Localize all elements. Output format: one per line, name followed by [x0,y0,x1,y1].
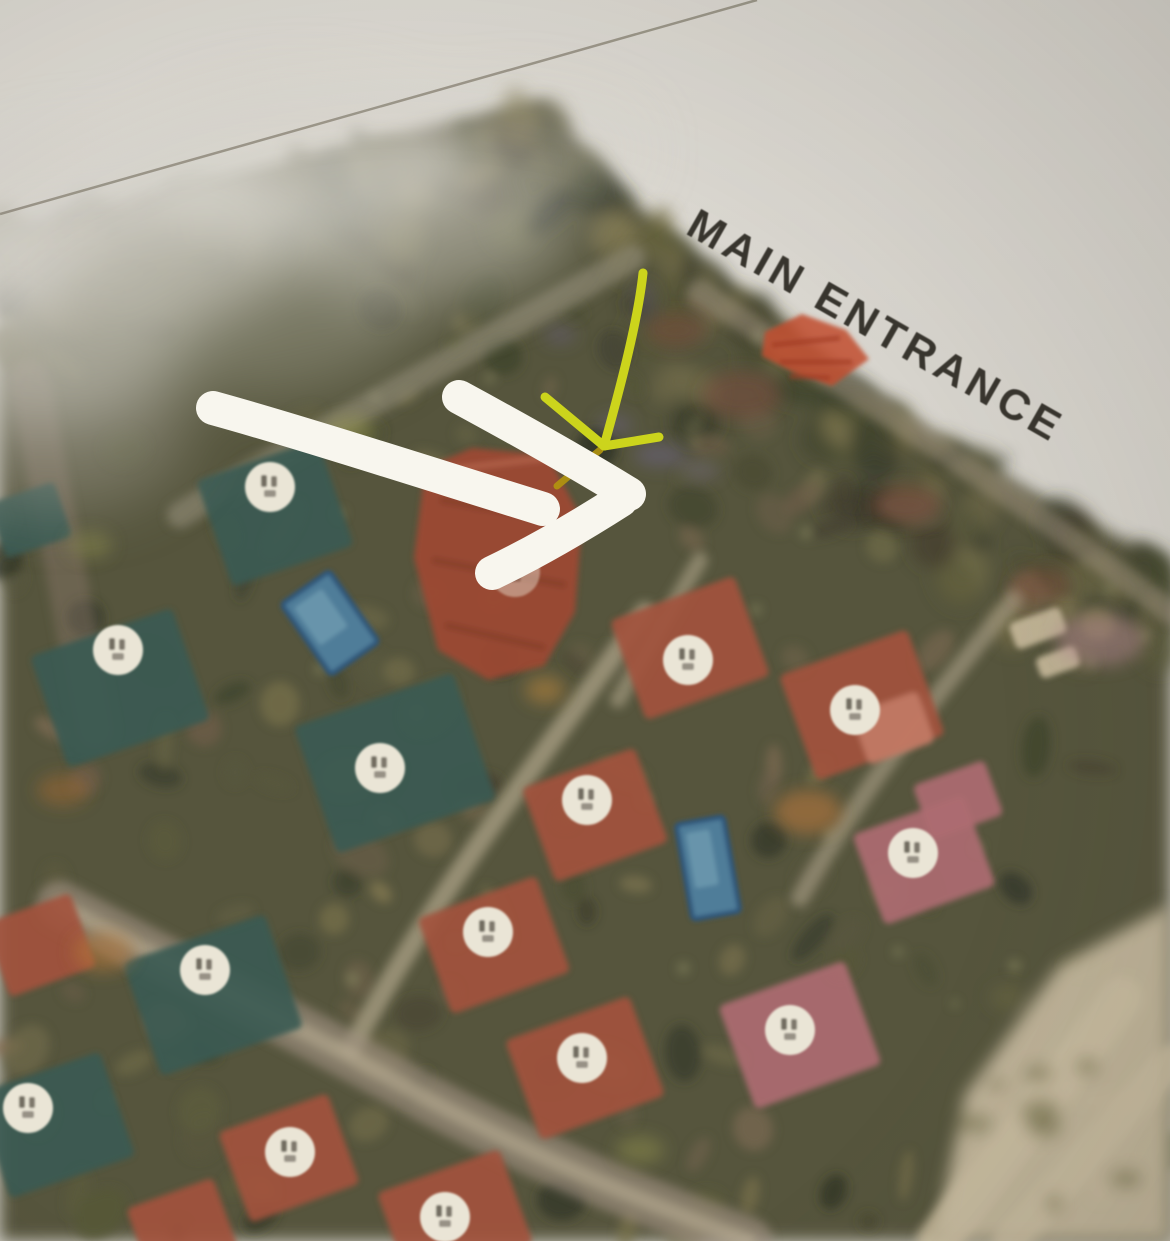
unit-number-marker [93,625,143,675]
unit-number-marker [562,775,612,825]
unit-number-marker [765,1005,815,1055]
unit-number-marker [830,685,880,735]
unit-number-marker [888,828,938,878]
site-plan-map [0,0,1170,1241]
unit-number-marker [265,1127,315,1177]
unit-number-marker [3,1083,53,1133]
unit-number-marker [355,743,405,793]
site-plan-photo: MAIN ENTRANCE [0,0,1170,1241]
unit-number-marker [245,462,295,512]
unit-number-marker [463,907,513,957]
unit-number-marker [557,1033,607,1083]
unit-number-marker [180,945,230,995]
unit-number-marker [420,1192,470,1241]
unit-number-marker [663,635,713,685]
